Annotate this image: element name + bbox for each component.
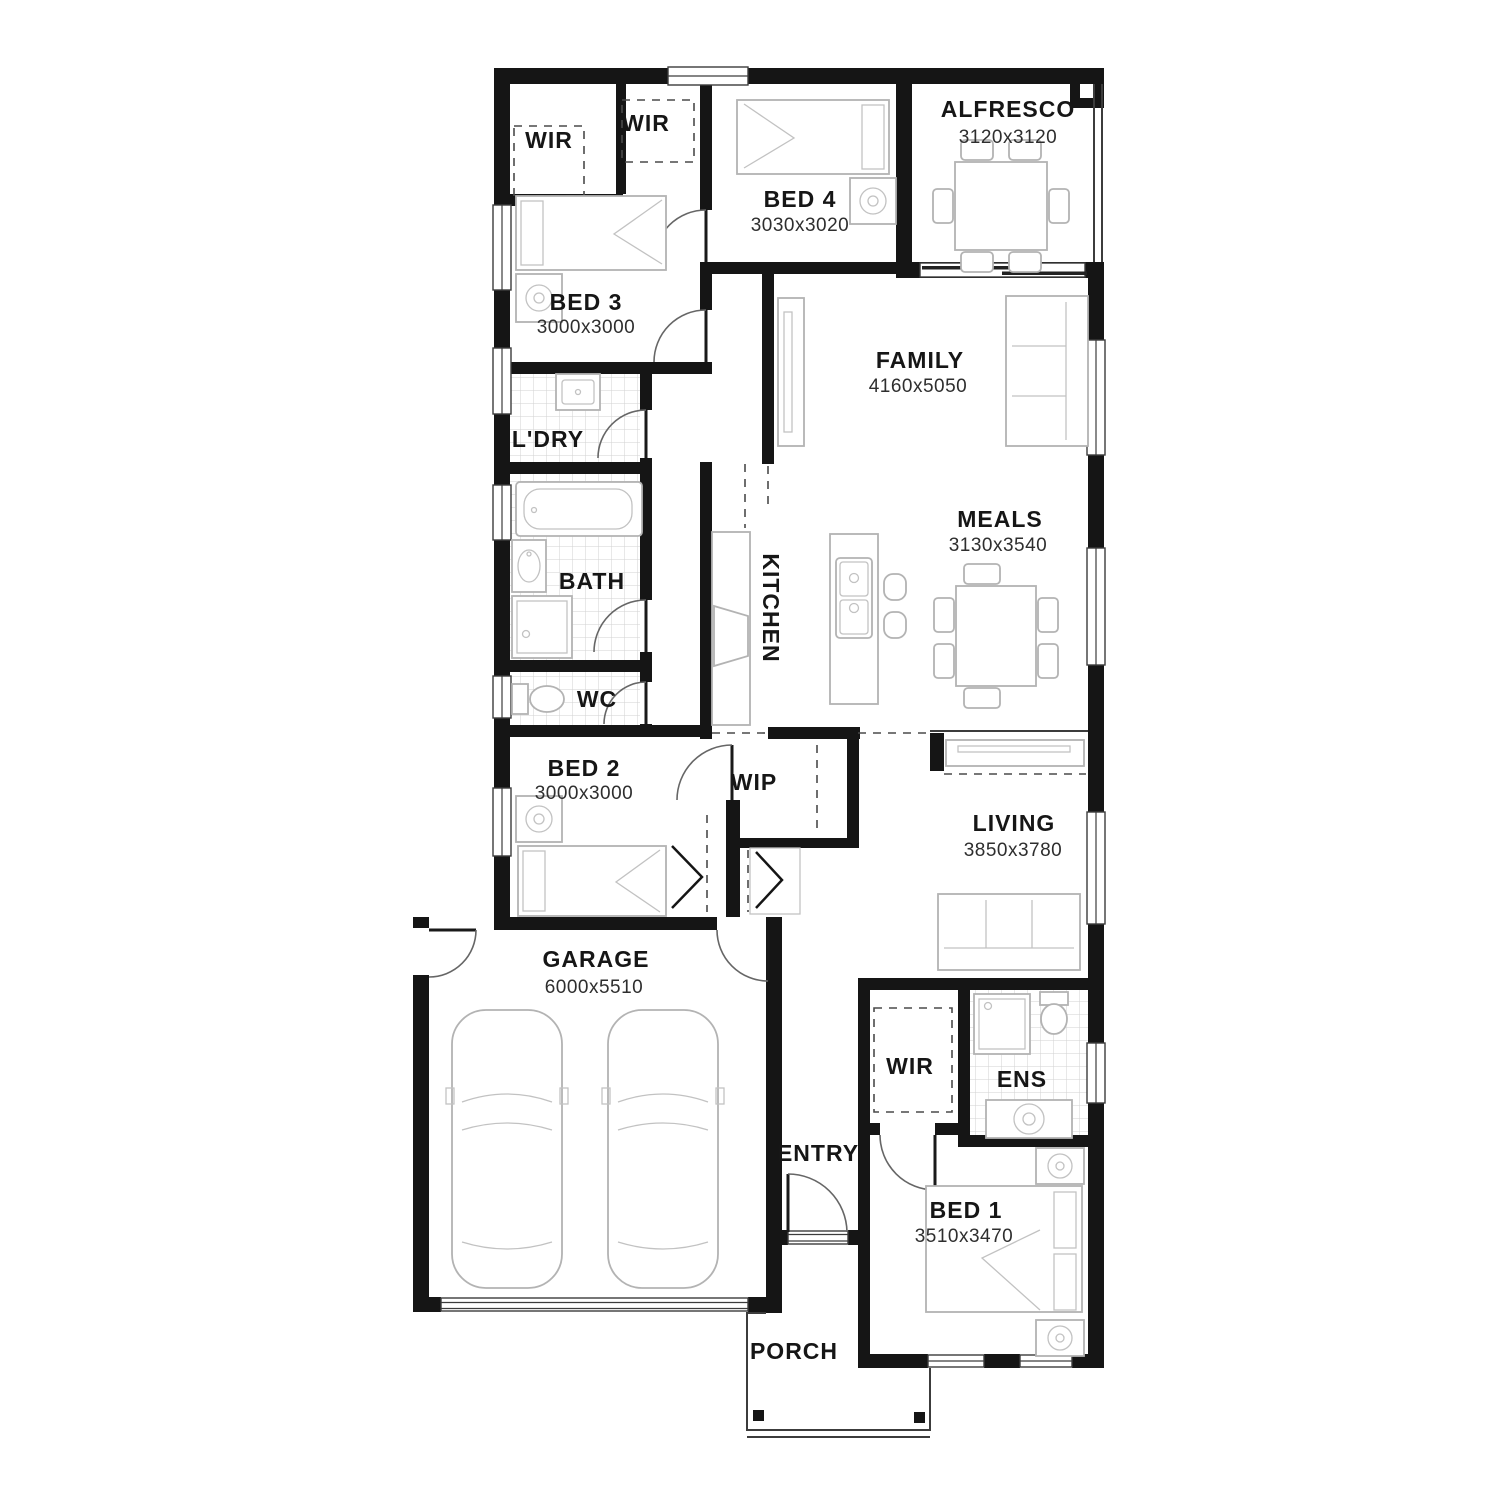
cooktop [836, 558, 872, 638]
living-tv-unit [946, 740, 1084, 766]
room-label-garage: GARAGE [543, 946, 650, 972]
room-dims-family: 4160x5050 [869, 376, 968, 397]
kitchen-sink [714, 606, 748, 666]
room-dims-living: 3850x3780 [964, 840, 1063, 861]
room-dims-bed3: 3000x3000 [537, 317, 636, 338]
car [602, 1010, 724, 1288]
kitchen-island [830, 534, 906, 704]
room-label-meals: MEALS [957, 506, 1043, 532]
laundry-tub [556, 374, 600, 410]
kitchen-bench [712, 532, 750, 725]
room-label-wir-bed1: WIR [886, 1053, 934, 1079]
family-tv-unit [778, 298, 804, 446]
bed2-door [677, 745, 732, 800]
room-label-wc: WC [577, 686, 617, 712]
alfresco-dining-set [933, 140, 1069, 272]
garage-internal-door [717, 930, 768, 981]
ensuite-toilet [1040, 992, 1068, 1034]
bed1-furniture [926, 1148, 1084, 1356]
room-label-porch: PORCH [750, 1338, 838, 1364]
bed2-robe-bifold [672, 846, 702, 908]
room-dims-alfresco: 3120x3120 [959, 127, 1058, 148]
garage-side-door [429, 930, 476, 977]
room-label-wip: WIP [731, 769, 777, 795]
bathtub [516, 482, 642, 536]
room-label-bed1: BED 1 [930, 1197, 1003, 1223]
room-dims-bed4: 3030x3020 [751, 215, 850, 236]
family-sofa [1006, 296, 1088, 446]
porch-post [753, 1410, 764, 1421]
room-label-wir-left: WIR [525, 127, 573, 153]
floor-plan-page: WIR WIR BED 4 3030x3020 ALFRESCO 3120x31… [0, 0, 1500, 1500]
bed2-furniture [516, 796, 666, 916]
room-label-wir-top: WIR [622, 110, 670, 136]
stool [884, 574, 906, 600]
room-label-bed2: BED 2 [548, 755, 621, 781]
room-label-bed3: BED 3 [550, 289, 623, 315]
bed3-door [654, 310, 706, 362]
porch-post [914, 1412, 925, 1423]
room-label-bed4: BED 4 [764, 186, 837, 212]
stool [884, 612, 906, 638]
porch-outline [747, 1313, 930, 1430]
bed1-door [880, 1135, 935, 1190]
ensuite-shower [974, 994, 1030, 1054]
room-dims-meals: 3130x3540 [949, 535, 1048, 556]
room-dims-bed1: 3510x3470 [915, 1226, 1014, 1247]
room-label-alfresco: ALFRESCO [941, 96, 1076, 122]
room-dims-garage: 6000x5510 [545, 977, 644, 998]
room-label-living: LIVING [973, 810, 1056, 836]
room-label-family: FAMILY [876, 347, 964, 373]
floor-plan-drawing: WIR WIR BED 4 3030x3020 ALFRESCO 3120x31… [0, 0, 1500, 1500]
bath-shower [512, 596, 572, 658]
room-label-kitchen: KITCHEN [758, 553, 784, 662]
bath-vanity [512, 540, 546, 592]
meals-dining-set [934, 564, 1058, 708]
car [446, 1010, 568, 1288]
linen-bifold [756, 852, 782, 908]
ensuite-vanity [986, 1100, 1072, 1138]
front-door-threshold [788, 1231, 848, 1244]
front-door [788, 1174, 847, 1232]
wc-toilet [512, 684, 564, 714]
room-label-bath: BATH [559, 568, 625, 594]
room-label-ens: ENS [997, 1066, 1047, 1092]
living-sofa [938, 894, 1080, 970]
room-dims-bed2: 3000x3000 [535, 783, 634, 804]
room-label-laundry: L'DRY [512, 426, 584, 452]
linen-cupboard [750, 848, 800, 914]
room-label-entry: ENTRY [777, 1140, 859, 1166]
